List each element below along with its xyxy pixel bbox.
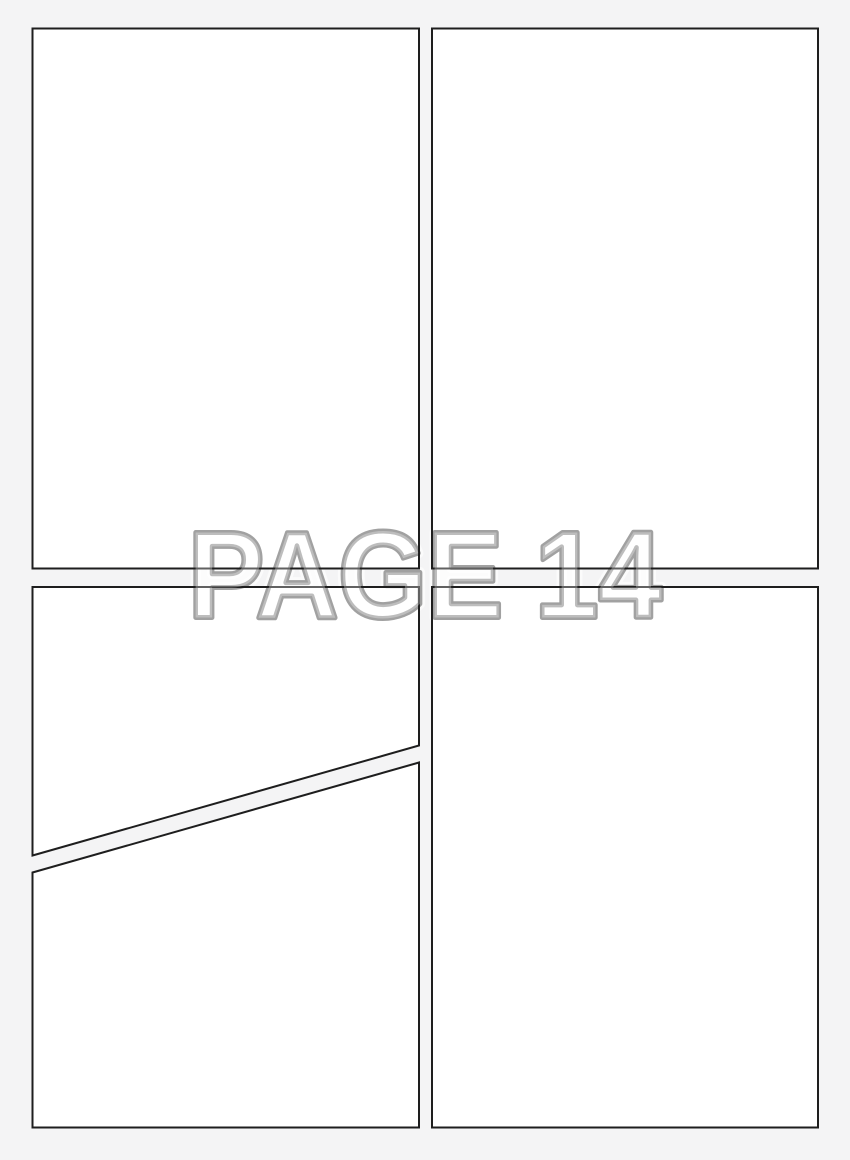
svg-text:PAGE 14: PAGE 14 bbox=[188, 508, 662, 645]
